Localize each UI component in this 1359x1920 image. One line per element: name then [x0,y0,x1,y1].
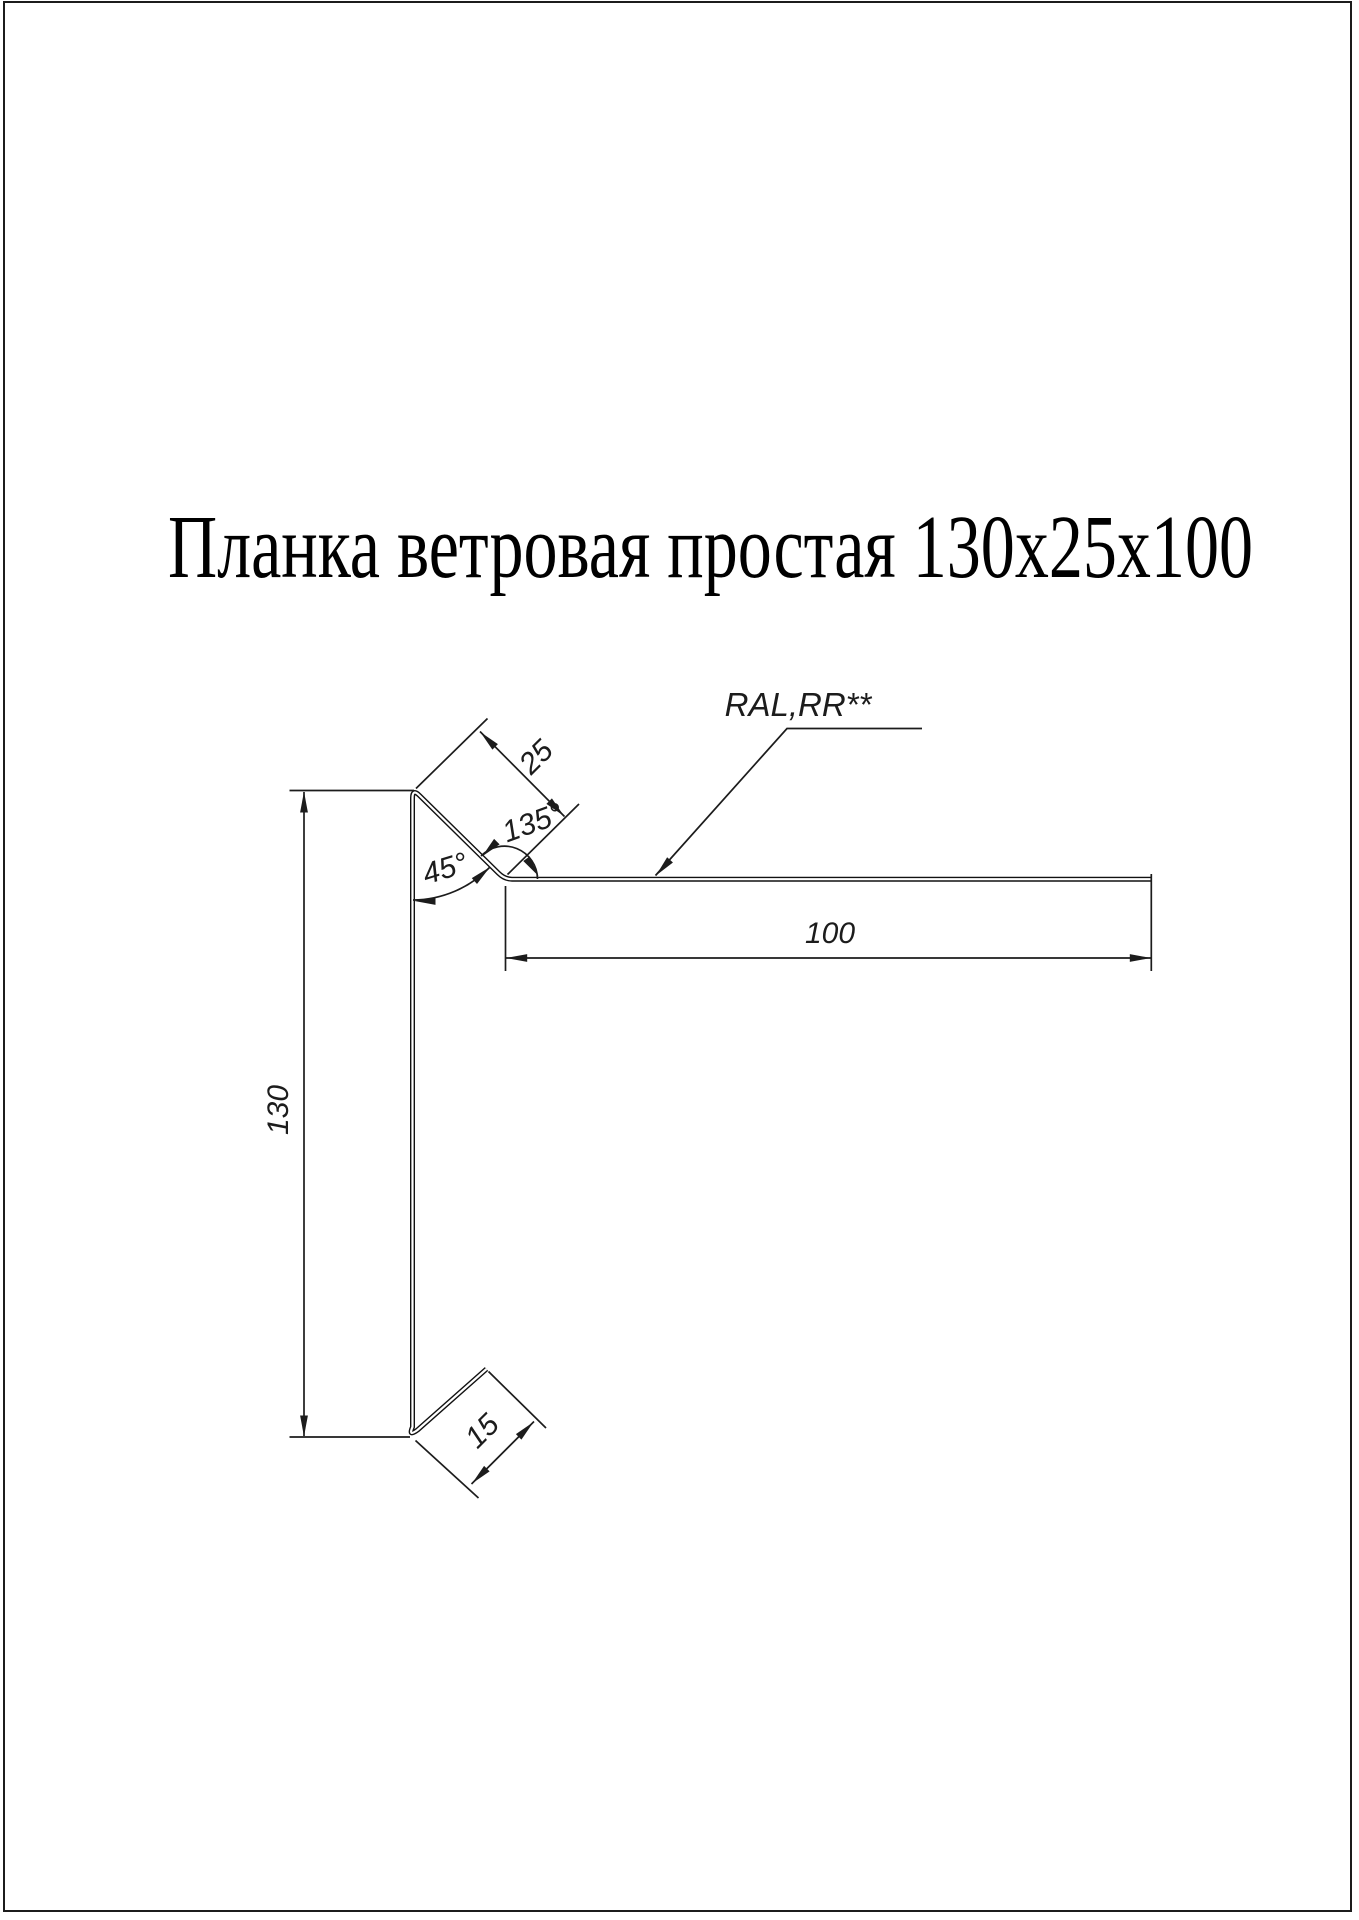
arrow-icon [300,792,308,813]
dimension-100: 100 [506,874,1152,971]
dimension-value-100: 100 [805,917,855,950]
dimension-25: 25 [416,719,579,875]
profile-core [411,793,1151,1433]
arrow-icon [1130,954,1151,962]
arrow-icon [516,1419,536,1439]
extension-line [489,1372,547,1429]
page-title: Планка ветровая простая 130х25х100 [168,498,1253,597]
angle-value-135: 135° [498,797,568,849]
coating-label: RAL,RR** [725,686,873,723]
profile-outline [411,793,1151,1433]
leader-line [656,729,923,876]
profile-drawing: Планка ветровая простая 130х25х100 130 1… [0,0,1359,1920]
arrow-icon [415,897,436,905]
arrow-icon [506,954,527,962]
arrow-icon [478,729,498,749]
arrow-icon [300,1416,308,1437]
dimension-value-130: 130 [262,1085,295,1135]
dimension-value-15: 15 [459,1408,506,1455]
profile-section [411,793,1151,1433]
arrow-icon [469,1466,489,1486]
extension-line [416,719,488,789]
dimension-130: 130 [262,791,414,1438]
dimension-value-25: 25 [512,734,560,782]
arrow-icon [479,839,499,859]
drawing-page: { "page": { "title": "Планка ветровая пр… [0,0,1359,1920]
coating-callout: RAL,RR** [653,686,922,878]
dimension-15: 15 [416,1372,547,1499]
extension-line [416,1441,479,1499]
angle-value-45: 45° [419,847,472,892]
arrow-icon [523,857,541,879]
